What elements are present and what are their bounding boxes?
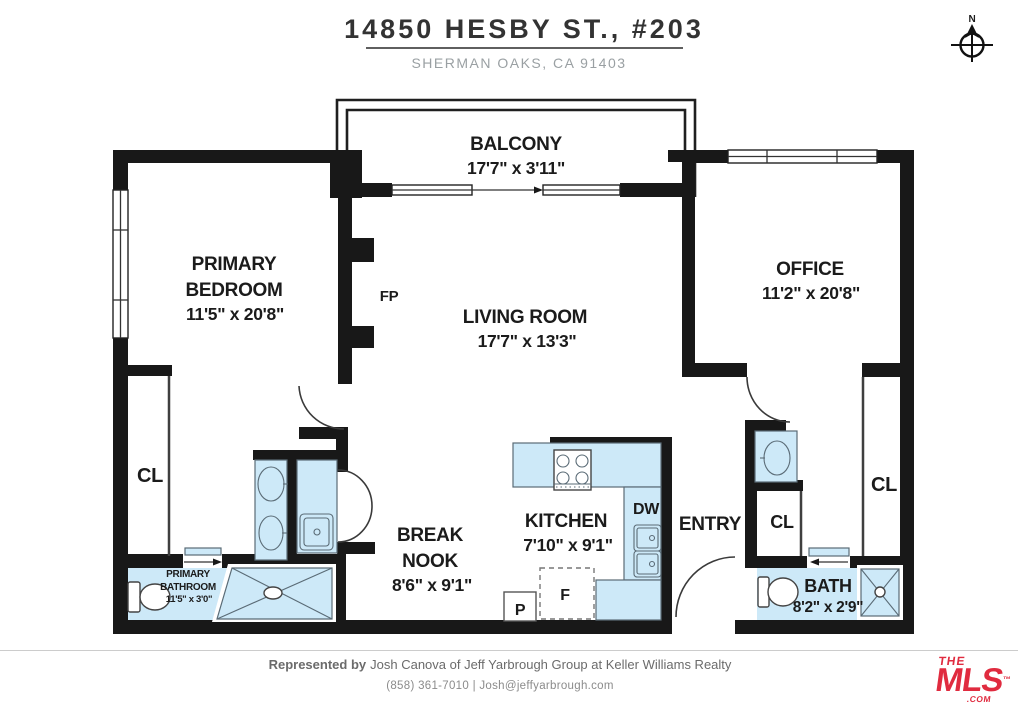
entry-label: ENTRY [679, 514, 742, 535]
floor-plan-page: 14850 HESBY ST., #203 SHERMAN OAKS, CA 9… [0, 0, 1018, 720]
primary-bathroom-dims: 11'5" x 3'0" [166, 594, 212, 605]
bath-pocket-door [809, 548, 849, 566]
bath-shower [857, 565, 903, 620]
mls-logo: THE MLS™ .COM [931, 656, 1017, 716]
bedroom-window [113, 190, 128, 338]
mls-logo-name: MLS™ [934, 666, 1016, 694]
closet-entry-label: CL [770, 512, 794, 532]
footer-divider [0, 650, 1018, 651]
kitchen-dims: 7'10" x 9'1" [523, 535, 612, 555]
balcony-sliding-door [392, 185, 620, 195]
balcony-label: BALCONY [470, 134, 562, 155]
agent-text: Josh Canova of Jeff Yarbrough Group at K… [370, 657, 731, 672]
primary-bedroom-label-1: PRIMARY [192, 254, 277, 275]
laundry-closet [297, 460, 337, 553]
break-nook-label-1: BREAK [397, 525, 464, 546]
office-label: OFFICE [776, 259, 844, 280]
refrigerator-label: F [560, 587, 570, 604]
office-window [728, 150, 877, 163]
primary-bathroom-shower [212, 564, 336, 622]
balcony-dims: 17'7" x 3'11" [467, 158, 565, 178]
entry-door-arc [676, 557, 735, 617]
pantry-label: P [515, 602, 526, 619]
primary-bathroom-label-1: PRIMARY [166, 569, 210, 580]
compass: N [951, 14, 993, 62]
closet-primary-label: CL [137, 465, 163, 487]
break-nook-dims: 8'6" x 9'1" [392, 575, 472, 595]
floor-plan-drawing: N BALCONY 17'7" x 3'11" PRIMARY BEDROOM … [0, 0, 1018, 720]
living-room-dims: 17'7" x 13'3" [478, 331, 577, 351]
primary-bedroom-dims: 11'5" x 20'8" [186, 304, 284, 324]
footer-agent-line: Represented byJosh Canova of Jeff Yarbro… [0, 657, 1000, 672]
primary-bathroom-label-2: BATHROOM [160, 582, 216, 593]
bath-dims: 8'2" x 2'9" [793, 599, 863, 616]
compass-north-label: N [969, 14, 976, 25]
office-door-arc [747, 377, 790, 422]
walls [113, 150, 914, 634]
primary-bath-pocket-door [184, 548, 222, 566]
primary-bedroom-label-2: BEDROOM [185, 280, 282, 301]
bath-label: BATH [804, 576, 851, 596]
kitchen-label: KITCHEN [525, 511, 607, 532]
represented-by-label: Represented by [269, 657, 367, 672]
laundry-bifold-arc-bottom [338, 506, 372, 542]
laundry-bifold-arc-top [338, 470, 372, 506]
closet-office-label: CL [871, 474, 897, 496]
footer-contact-line: (858) 361-7010 | Josh@jeffyarbrough.com [0, 680, 1000, 692]
break-nook-label-2: NOOK [402, 551, 458, 572]
primary-vanity [255, 460, 288, 560]
bedroom-door-arc [299, 386, 344, 429]
dishwasher-label: DW [633, 501, 660, 518]
stove [554, 450, 591, 490]
entry-vanity [755, 431, 797, 482]
fireplace-label: FP [380, 288, 399, 305]
office-dims: 11'2" x 20'8" [762, 283, 860, 303]
fireplace [338, 238, 376, 348]
mls-logo-tm: ™ [1002, 675, 1010, 684]
living-room-label: LIVING ROOM [463, 307, 587, 328]
